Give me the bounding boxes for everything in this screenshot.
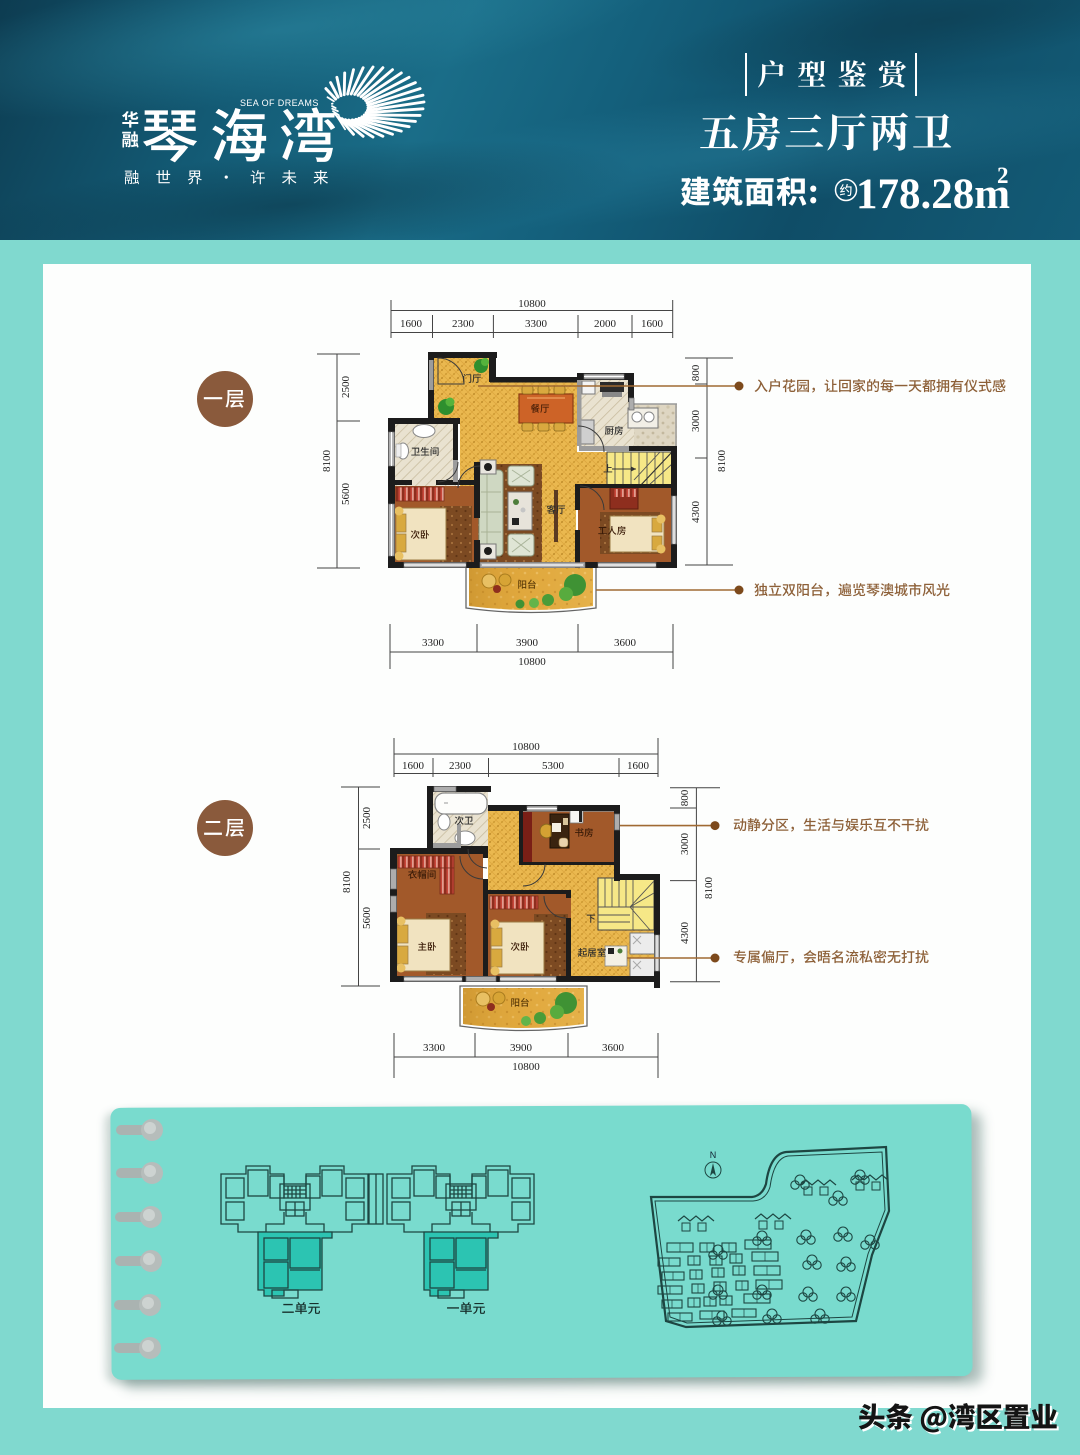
svg-text:N: N (710, 1150, 717, 1160)
